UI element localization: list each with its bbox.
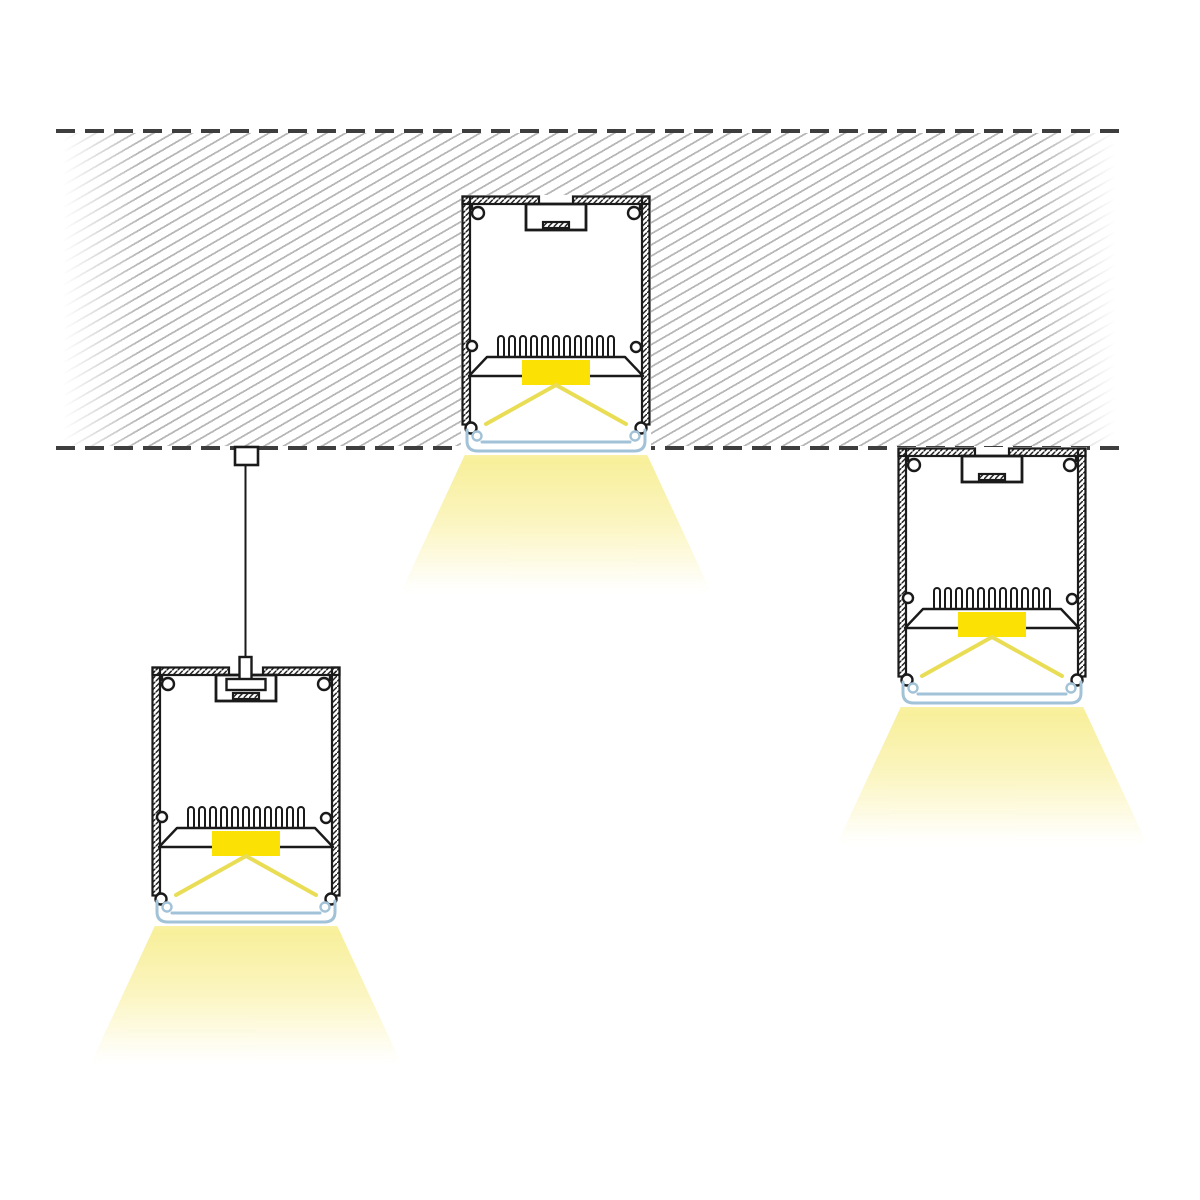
diagram-canvas: [0, 0, 1200, 1200]
ceiling-mount-block: [235, 447, 258, 465]
recessed-led-profile: [461, 195, 651, 455]
suspended-led-profile: [151, 666, 341, 926]
profile-cross-sections: [0, 0, 1200, 1200]
suspension-pin-foot: [227, 679, 266, 690]
surface-mounted-led-profile: [897, 447, 1087, 707]
